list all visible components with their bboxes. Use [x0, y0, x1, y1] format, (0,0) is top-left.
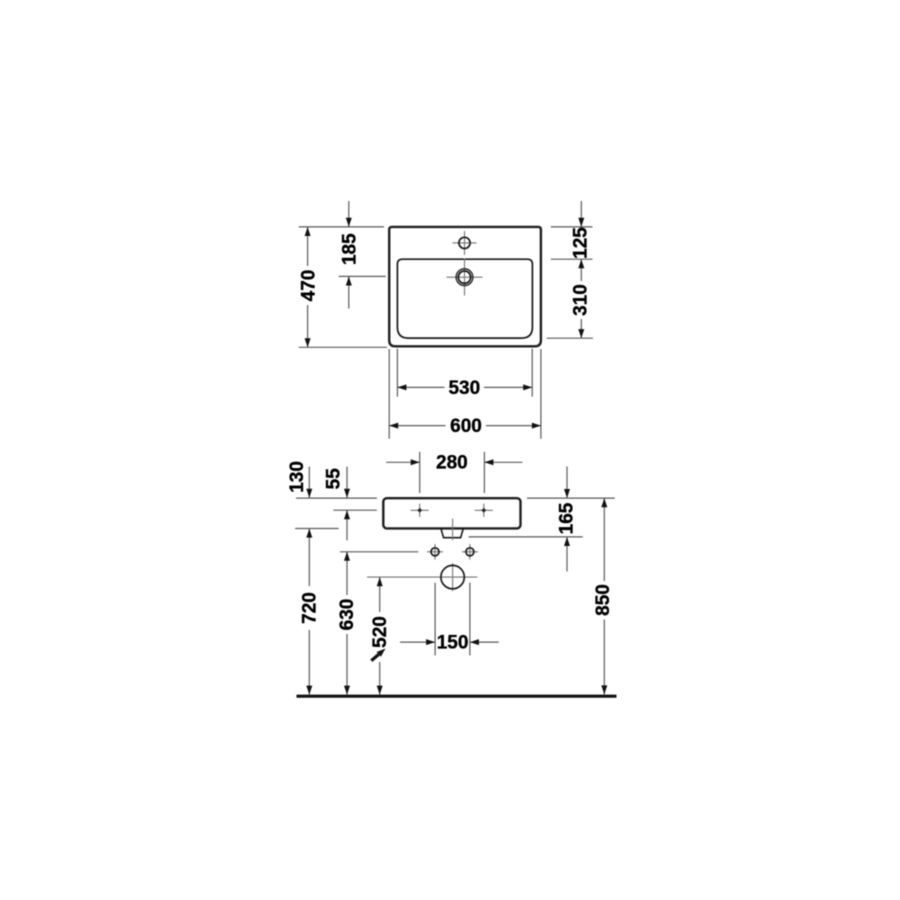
svg-text:150: 150: [437, 632, 469, 653]
svg-text:720: 720: [299, 592, 320, 624]
svg-text:520: 520: [370, 616, 391, 648]
svg-text:125: 125: [570, 227, 591, 259]
svg-text:530: 530: [448, 378, 480, 399]
svg-text:130: 130: [287, 461, 308, 493]
svg-text:470: 470: [299, 270, 320, 302]
svg-text:310: 310: [570, 284, 591, 316]
svg-text:185: 185: [340, 233, 361, 265]
svg-text:55: 55: [323, 468, 344, 490]
svg-text:630: 630: [337, 599, 358, 631]
svg-text:165: 165: [557, 502, 578, 534]
svg-text:280: 280: [436, 453, 468, 474]
svg-text:600: 600: [450, 416, 482, 437]
svg-text:850: 850: [593, 584, 614, 616]
